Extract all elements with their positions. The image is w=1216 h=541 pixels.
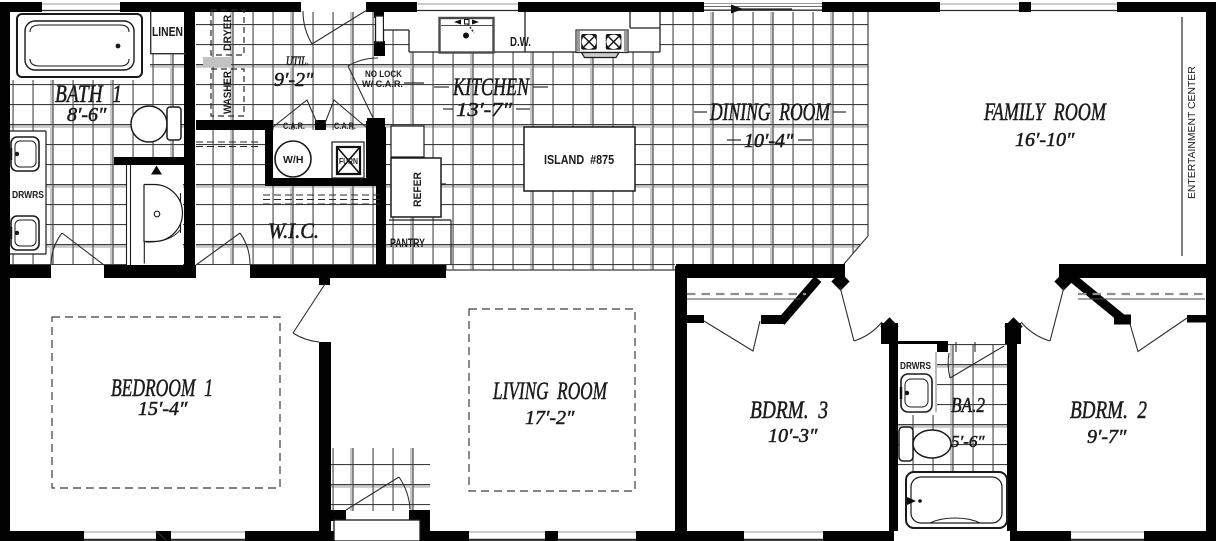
svg-text:DRWRS: DRWRS — [12, 189, 44, 200]
svg-text:C.A.R.: C.A.R. — [334, 121, 356, 131]
svg-text:DRYER: DRYER — [222, 15, 234, 51]
svg-text:NO LOCK: NO LOCK — [365, 68, 403, 79]
svg-text:9′-2″: 9′-2″ — [274, 69, 314, 91]
svg-text:W/H: W/H — [283, 154, 303, 166]
svg-text:9′-7″: 9′-7″ — [1087, 426, 1127, 448]
svg-text:D.W.: D.W. — [510, 36, 531, 50]
svg-text:FURN: FURN — [339, 156, 358, 166]
svg-text:FAMILY ROOM: FAMILY ROOM — [983, 98, 1107, 125]
svg-text:15′-4″: 15′-4″ — [138, 398, 188, 420]
svg-text:10′-3″: 10′-3″ — [768, 425, 818, 447]
svg-text:13′-7″: 13′-7″ — [456, 99, 513, 121]
svg-text:PANTRY: PANTRY — [390, 237, 425, 251]
svg-text:W/ C.A.R.: W/ C.A.R. — [362, 79, 403, 89]
svg-text:17′-2″: 17′-2″ — [525, 407, 575, 429]
svg-text:BA.2: BA.2 — [951, 395, 985, 418]
svg-text:ENTERTAINMENT CENTER: ENTERTAINMENT CENTER — [1187, 66, 1198, 199]
svg-text:LIVING ROOM: LIVING ROOM — [492, 377, 608, 405]
svg-text:WASHER: WASHER — [223, 71, 235, 114]
svg-text:10′-4″: 10′-4″ — [744, 130, 794, 152]
svg-text:BDRM. 2: BDRM. 2 — [1070, 396, 1147, 424]
svg-text:LINEN: LINEN — [152, 25, 183, 39]
svg-text:8′-6″: 8′-6″ — [67, 104, 107, 126]
svg-text:W.I.C.: W.I.C. — [268, 218, 319, 243]
svg-text:16′-10″: 16′-10″ — [1015, 129, 1075, 151]
svg-text:DINING ROOM: DINING ROOM — [709, 98, 831, 126]
svg-text:KITCHEN: KITCHEN — [452, 73, 530, 101]
svg-text:REFER: REFER — [412, 172, 424, 207]
svg-text:DRWRS: DRWRS — [900, 360, 931, 371]
svg-text:UTIL.: UTIL. — [286, 55, 309, 69]
svg-text:BDRM. 3: BDRM. 3 — [750, 396, 828, 424]
svg-text:5′-6″: 5′-6″ — [951, 432, 985, 451]
svg-text:ISLAND #875: ISLAND #875 — [544, 152, 614, 167]
svg-text:C.A.R.: C.A.R. — [283, 121, 305, 131]
